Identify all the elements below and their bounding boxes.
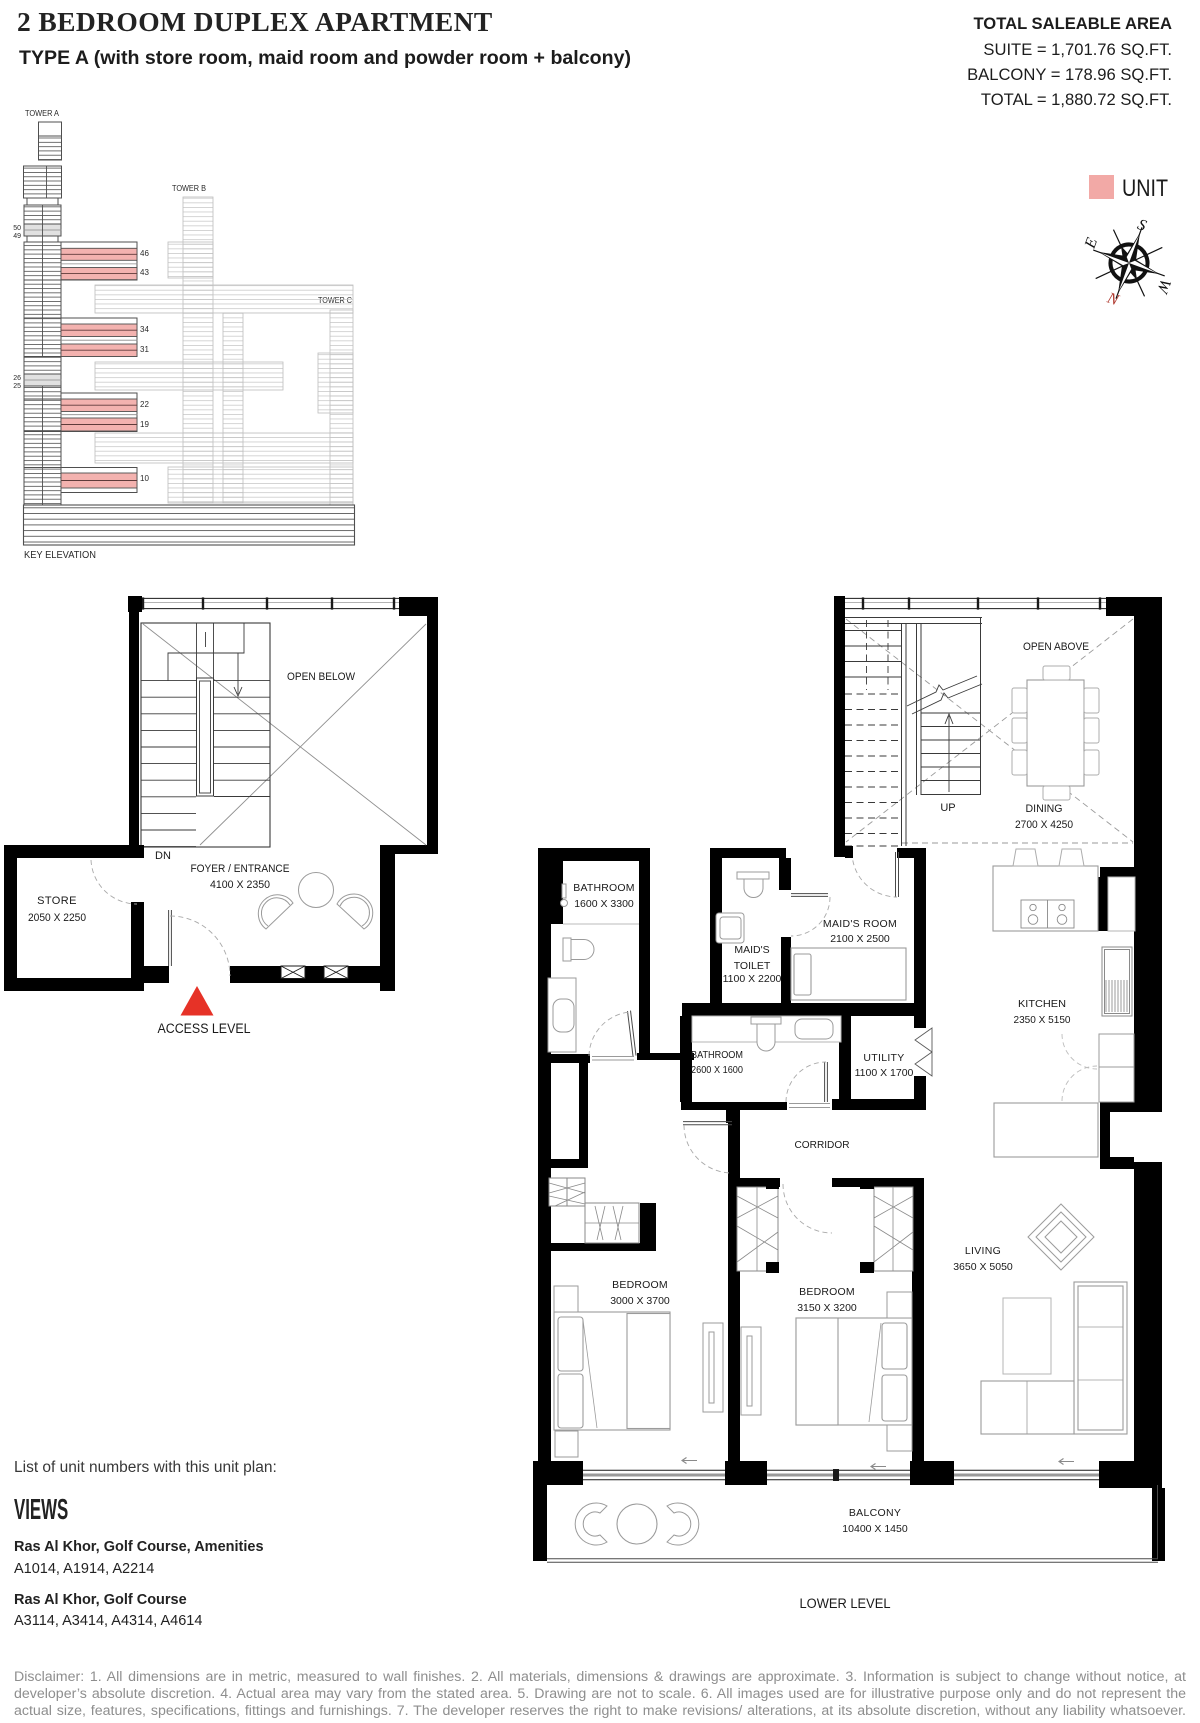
- svg-text:46: 46: [140, 249, 149, 258]
- svg-text:1100 X 1700: 1100 X 1700: [855, 1067, 914, 1079]
- svg-text:4100 X 2350: 4100 X 2350: [210, 879, 270, 891]
- svg-text:BATHROOM: BATHROOM: [691, 1049, 743, 1061]
- svg-text:LIVING: LIVING: [965, 1245, 1001, 1257]
- svg-text:BATHROOM: BATHROOM: [573, 882, 635, 894]
- svg-text:CORRIDOR: CORRIDOR: [795, 1139, 850, 1151]
- svg-text:1600 X 3300: 1600 X 3300: [574, 898, 634, 910]
- svg-text:DN: DN: [155, 850, 171, 862]
- svg-text:KEY ELEVATION: KEY ELEVATION: [24, 549, 96, 561]
- svg-text:49: 49: [13, 233, 21, 240]
- svg-text:UP: UP: [940, 802, 955, 814]
- svg-text:FOYER / ENTRANCE: FOYER / ENTRANCE: [191, 863, 290, 875]
- svg-text:E: E: [1081, 235, 1101, 251]
- svg-text:DINING: DINING: [1026, 803, 1063, 815]
- svg-text:10400 X 1450: 10400 X 1450: [842, 1523, 908, 1535]
- svg-text:BEDROOM: BEDROOM: [612, 1279, 668, 1291]
- svg-text:22: 22: [140, 400, 149, 409]
- svg-text:2050 X 2250: 2050 X 2250: [28, 912, 86, 924]
- svg-text:10: 10: [140, 474, 149, 483]
- svg-text:31: 31: [140, 345, 149, 354]
- svg-text:TOWER B: TOWER B: [172, 183, 206, 193]
- svg-text:UNIT: UNIT: [1122, 175, 1168, 202]
- svg-text:UTILITY: UTILITY: [863, 1052, 904, 1064]
- svg-text:3150 X 3200: 3150 X 3200: [797, 1302, 857, 1314]
- svg-text:KITCHEN: KITCHEN: [1018, 998, 1066, 1010]
- svg-text:OPEN BELOW: OPEN BELOW: [287, 671, 356, 683]
- svg-text:19: 19: [140, 420, 149, 429]
- svg-text:3650 X 5050: 3650 X 5050: [953, 1261, 1013, 1273]
- svg-text:2700 X 4250: 2700 X 4250: [1015, 819, 1073, 831]
- svg-text:ACCESS LEVEL: ACCESS LEVEL: [158, 1021, 251, 1036]
- svg-text:50: 50: [13, 225, 21, 232]
- svg-text:3000 X 3700: 3000 X 3700: [610, 1295, 670, 1307]
- svg-text:TOILET: TOILET: [734, 960, 771, 972]
- svg-text:2600 X 1600: 2600 X 1600: [691, 1064, 743, 1076]
- svg-text:S: S: [1135, 216, 1148, 235]
- svg-text:2350 X 5150: 2350 X 5150: [1014, 1014, 1071, 1026]
- svg-text:43: 43: [140, 268, 149, 277]
- svg-text:LOWER LEVEL: LOWER LEVEL: [800, 1596, 891, 1611]
- svg-text:N: N: [1104, 289, 1122, 309]
- svg-text:2100 X 2500: 2100 X 2500: [830, 933, 890, 945]
- svg-text:W: W: [1153, 277, 1174, 297]
- svg-text:26: 26: [13, 375, 21, 382]
- svg-text:OPEN ABOVE: OPEN ABOVE: [1023, 641, 1089, 653]
- svg-text:MAID'S: MAID'S: [734, 944, 769, 956]
- svg-text:BEDROOM: BEDROOM: [799, 1286, 855, 1298]
- svg-text:34: 34: [140, 325, 149, 334]
- svg-text:TOWER A: TOWER A: [25, 108, 59, 118]
- svg-text:25: 25: [13, 383, 21, 390]
- svg-text:MAID'S ROOM: MAID'S ROOM: [823, 918, 897, 930]
- svg-text:STORE: STORE: [37, 895, 77, 907]
- svg-text:BALCONY: BALCONY: [849, 1507, 901, 1519]
- svg-text:1100 X 2200: 1100 X 2200: [723, 973, 782, 985]
